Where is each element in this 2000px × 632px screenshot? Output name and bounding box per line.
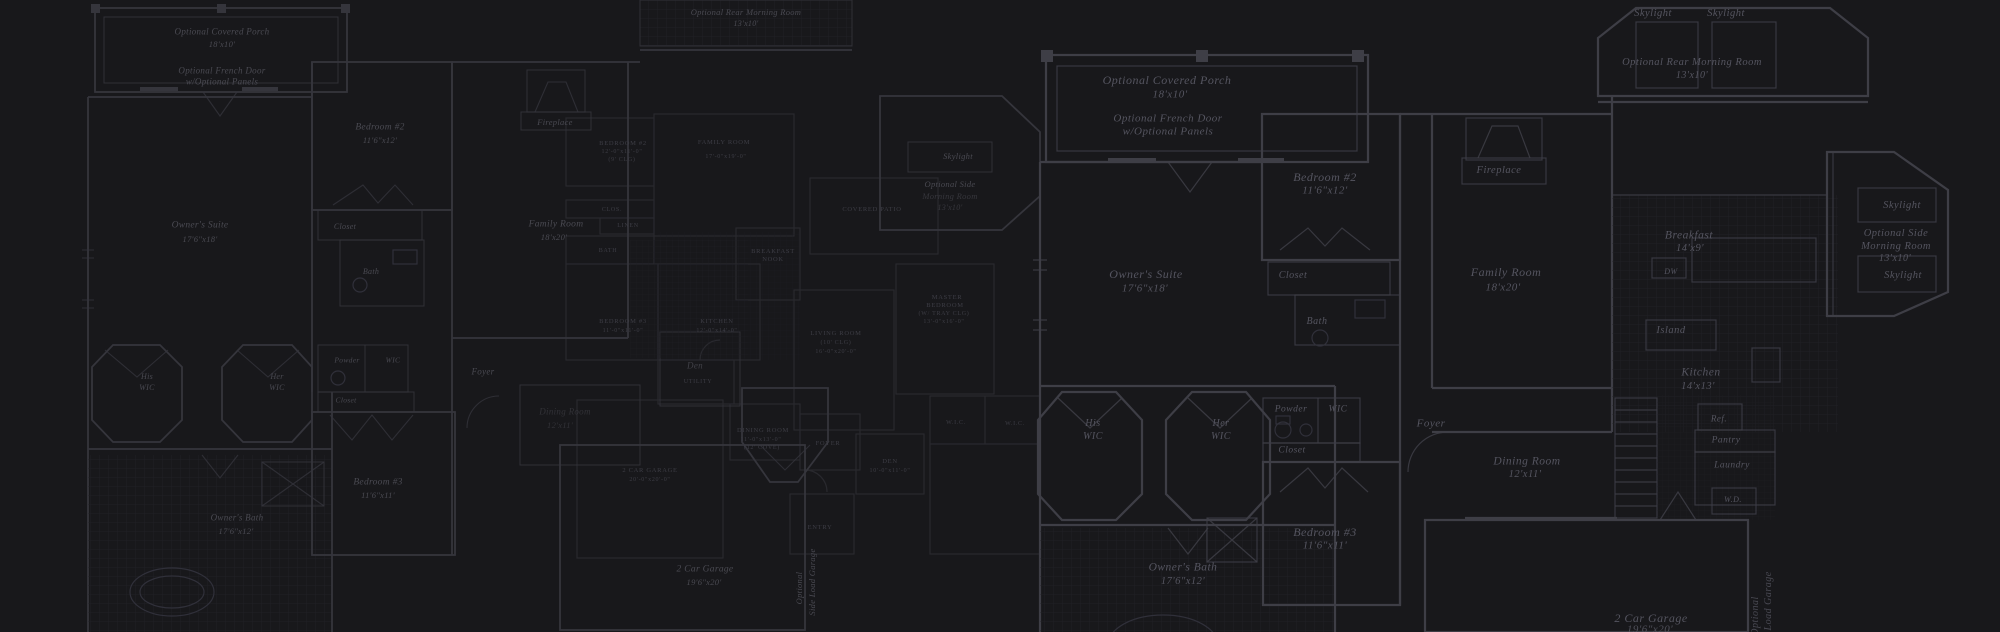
- room-label: 2 CAR GARAGE: [622, 468, 677, 475]
- room-label: 11'6"x11': [1303, 541, 1348, 552]
- room-label: Pantry: [1712, 436, 1741, 446]
- room-label: (10' CLG): [821, 340, 852, 346]
- room-label: Owner's Bath: [1149, 562, 1218, 574]
- room-label: LIVING ROOM: [810, 331, 861, 338]
- room-label: BEDROOM #3: [599, 319, 647, 326]
- room-label: (12' COVE): [744, 445, 780, 451]
- room-label: Closet: [336, 396, 357, 404]
- room-label: Her: [1212, 419, 1229, 429]
- room-label: KITCHEN: [700, 319, 733, 326]
- room-label: Optional: [1751, 596, 1761, 632]
- room-label: 17'6"x12': [219, 527, 254, 536]
- room-label: Optional: [795, 572, 804, 605]
- room-label: WIC: [269, 384, 285, 392]
- room-label: Optional Side: [1864, 229, 1929, 240]
- room-label: Optional French Door: [178, 67, 265, 76]
- room-label: BREAKFAST: [751, 249, 795, 256]
- room-label: 17'-0"x19'-0": [705, 154, 746, 160]
- room-label: Optional Covered Porch: [175, 28, 270, 37]
- room-label: 16'-0"x20'-0": [815, 349, 856, 355]
- room-label: 17'6"x12': [1161, 577, 1205, 588]
- room-label: Skylight: [1884, 271, 1922, 282]
- room-label: 2 Car Garage: [677, 565, 734, 575]
- room-label: Bedroom #3: [1293, 526, 1357, 538]
- room-label: 17'6"x18': [183, 235, 218, 244]
- room-label: His: [141, 373, 153, 381]
- room-label: Fireplace: [537, 118, 572, 127]
- room-label: Dining Room: [1493, 456, 1560, 468]
- room-label: 13'x10': [937, 204, 962, 212]
- room-label: 14'x13': [1681, 382, 1715, 393]
- room-label: 11'6"x12': [363, 136, 397, 145]
- room-label: Den: [687, 362, 703, 371]
- room-label: NOOK: [762, 257, 784, 264]
- room-label: WIC: [386, 356, 401, 364]
- room-label: WIC: [1211, 432, 1231, 442]
- room-label: Optional Side: [925, 180, 976, 189]
- room-label: W.D.: [1724, 496, 1742, 504]
- room-label: Powder: [334, 356, 359, 364]
- room-label: w/Optional Panels: [1123, 127, 1214, 138]
- room-label: 10'-0"x11'-0": [870, 468, 911, 474]
- room-label: Bath: [363, 268, 379, 276]
- room-label: Dining Room: [539, 408, 591, 417]
- room-label: Bedroom #2: [1293, 171, 1357, 183]
- room-label: ENTRY: [808, 525, 833, 532]
- room-label: 11'-0"x11'-0": [603, 328, 644, 334]
- room-label: WIC: [1329, 405, 1348, 415]
- room-label: Closet: [1278, 446, 1305, 456]
- room-label: 12'-0"x11'-0": [602, 149, 643, 155]
- room-label: 17'6"x18': [1122, 284, 1168, 295]
- room-label: 11'6"x12': [1302, 186, 1347, 197]
- room-label: DINING ROOM: [737, 428, 789, 435]
- room-label: WIC: [1083, 432, 1103, 442]
- floorplan-blueprint-canvas: Optional Covered Porch18'x10'Optional Fr…: [0, 0, 2000, 632]
- room-label: Optional French Door: [1113, 114, 1222, 125]
- room-label: Foyer: [1417, 419, 1446, 430]
- room-label: Bath: [1307, 317, 1328, 327]
- room-label: 12'x11': [1509, 470, 1542, 481]
- room-label: (9' CLG): [608, 157, 635, 163]
- room-label: Closet: [1279, 271, 1308, 281]
- room-label: Morning Room: [922, 192, 977, 201]
- room-label: Side Load Garage: [1764, 571, 1774, 632]
- room-label: Bedroom #2: [355, 123, 404, 133]
- room-label: Skylight: [1883, 201, 1921, 212]
- room-label: LINEN: [617, 223, 639, 229]
- room-label: UTILITY: [684, 379, 713, 385]
- room-label: 18'x20': [541, 233, 568, 242]
- room-label: FOYER: [816, 441, 841, 448]
- room-labels-layer: Optional Covered Porch18'x10'Optional Fr…: [0, 0, 2000, 632]
- room-label: 12'-0"x14'-0": [696, 328, 737, 334]
- room-label: Powder: [1275, 405, 1308, 415]
- room-label: Optional Rear Morning Room: [691, 8, 802, 17]
- room-label: Skylight: [1707, 9, 1745, 20]
- room-label: Ref.: [1711, 415, 1727, 424]
- room-label: COVERED PATIO: [842, 207, 901, 214]
- room-label: Laundry: [1714, 461, 1750, 471]
- room-label: BATH: [599, 248, 617, 254]
- room-label: Foyer: [472, 368, 495, 377]
- room-label: MASTER: [932, 295, 963, 302]
- room-label: BEDROOM #2: [599, 141, 647, 148]
- room-label: w/Optional Panels: [186, 78, 258, 87]
- room-label: 13'x10': [1879, 254, 1911, 264]
- room-label: 18'x10': [1152, 90, 1187, 101]
- room-label: WIC: [139, 384, 155, 392]
- room-label: Owner's Suite: [172, 221, 229, 231]
- room-label: 11'-0"x13'-0": [741, 437, 782, 443]
- room-label: 18'x20': [1485, 283, 1520, 294]
- room-label: W.I.C.: [1005, 421, 1025, 427]
- room-label: Breakfast: [1665, 230, 1713, 242]
- room-label: Closet: [334, 223, 356, 231]
- room-label: Skylight: [943, 152, 973, 161]
- room-label: CLOS.: [602, 207, 622, 213]
- room-label: DW: [1664, 268, 1677, 276]
- room-label: 13'-0"x16'-0": [923, 319, 964, 325]
- room-label: Side Load Garage: [808, 548, 817, 615]
- room-label: DEN: [882, 459, 897, 466]
- room-label: 18'x10': [209, 40, 236, 49]
- room-label: 2 Car Garage: [1614, 612, 1687, 624]
- room-label: Family Room: [529, 220, 584, 230]
- room-label: Her: [270, 373, 283, 381]
- room-label: 13'x10': [1676, 71, 1708, 81]
- room-label: 14'x9': [1676, 244, 1704, 255]
- room-label: (W/ TRAY CLG): [919, 311, 970, 317]
- room-label: 19'6"x20': [687, 578, 722, 587]
- room-label: Optional Rear Morning Room: [1622, 58, 1762, 69]
- room-label: 12'x11': [547, 421, 573, 430]
- room-label: W.I.C.: [946, 420, 966, 426]
- room-label: BEDROOM: [926, 303, 963, 310]
- room-label: Fireplace: [1477, 166, 1522, 177]
- room-label: Bedroom #3: [353, 478, 402, 488]
- room-label: Morning Room: [1861, 242, 1931, 253]
- room-label: Optional Covered Porch: [1103, 74, 1232, 86]
- room-label: His: [1085, 419, 1100, 429]
- room-label: Kitchen: [1681, 367, 1720, 379]
- room-label: Island: [1656, 326, 1685, 337]
- room-label: Owner's Suite: [1109, 268, 1182, 280]
- room-label: 11'6"x11': [361, 491, 395, 500]
- room-label: 13'x10': [733, 20, 758, 28]
- room-label: 20'-0"x20'-0": [629, 477, 670, 483]
- room-label: Family Room: [1471, 266, 1542, 278]
- room-label: Skylight: [1634, 9, 1672, 20]
- room-label: 19'6"x20': [1627, 625, 1673, 632]
- room-label: Owner's Bath: [211, 514, 264, 523]
- room-label: FAMILY ROOM: [698, 140, 750, 147]
